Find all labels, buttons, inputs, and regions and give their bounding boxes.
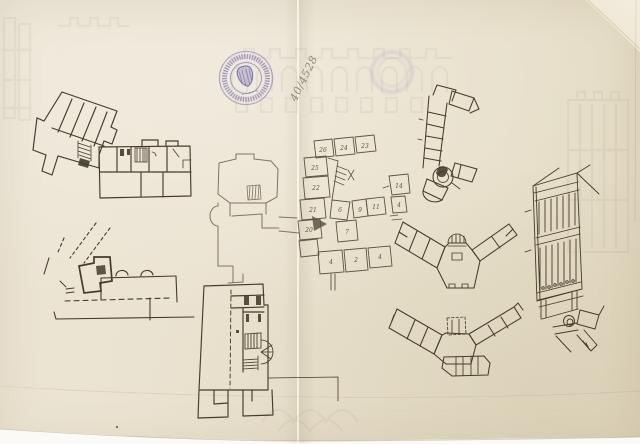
library-stamp-icon <box>214 46 278 110</box>
ghost-stamp-icon <box>372 52 412 92</box>
plan-top-right <box>418 85 479 202</box>
room-number: 2 <box>353 257 358 264</box>
plan-chevron-lower <box>389 303 523 376</box>
ink-fills-topright <box>436 166 448 177</box>
room-number: 11 <box>372 204 380 211</box>
corner-detail-sketch <box>553 306 604 352</box>
room-number: 23 <box>360 143 369 150</box>
ink-fills-topleft <box>78 149 130 168</box>
elevation-sketch <box>525 165 599 319</box>
plan-chevron-upper <box>395 222 517 288</box>
room-number-labels: 26 24 23 25 22 21 20 14 11 9 7 6 4 4 4 2 <box>304 143 403 266</box>
handwritten-inventory-number: 40/4528 <box>287 54 321 105</box>
room-number: 20 <box>304 227 313 234</box>
inventory-number-group: 40/4528 <box>287 54 321 105</box>
ink-fills-leftmiddle <box>96 265 106 275</box>
plan-left-middle <box>44 223 194 320</box>
room-number: 4 <box>396 202 401 209</box>
ink-fills-bottomcenter <box>236 296 261 333</box>
room-number: 6 <box>338 207 342 214</box>
drawing-layer: 26 24 23 25 22 21 20 14 11 9 7 6 4 4 4 2 <box>0 0 640 444</box>
room-number: 9 <box>358 207 362 214</box>
room-number: 21 <box>308 207 317 214</box>
room-number: 24 <box>339 145 348 152</box>
plan-top-left <box>33 92 191 198</box>
plan-bottom-center <box>198 284 338 418</box>
room-number: 25 <box>310 165 319 172</box>
room-number: 26 <box>318 147 327 154</box>
room-number: 22 <box>311 185 320 192</box>
room-number: 7 <box>345 229 349 236</box>
room-number: 4 <box>328 259 333 266</box>
room-number: 4 <box>377 254 382 261</box>
ink-speck <box>116 426 118 428</box>
plan-center-pencil <box>210 154 299 283</box>
room-number: 14 <box>395 183 403 190</box>
scanned-drawing-sheet: 26 24 23 25 22 21 20 14 11 9 7 6 4 4 4 2 <box>0 0 640 444</box>
